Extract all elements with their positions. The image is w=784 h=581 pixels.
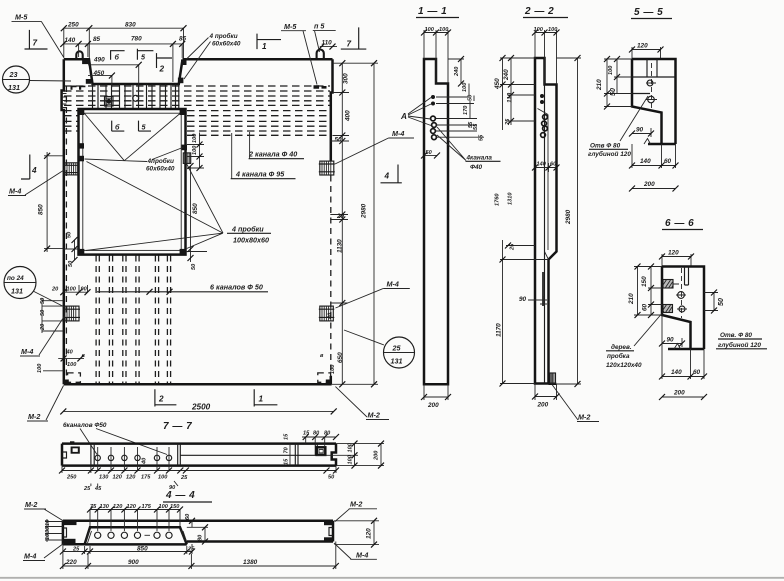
svg-text:40: 40	[142, 457, 148, 465]
svg-text:50: 50	[68, 260, 74, 267]
svg-text:4пробки: 4пробки	[147, 157, 174, 165]
svg-text:85: 85	[179, 36, 187, 43]
svg-text:25: 25	[392, 344, 402, 353]
svg-text:50: 50	[328, 475, 335, 481]
svg-text:120: 120	[113, 475, 123, 481]
svg-text:210: 210	[596, 79, 603, 91]
svg-text:150: 150	[641, 276, 648, 287]
svg-text:15: 15	[303, 431, 310, 437]
svg-text:60: 60	[642, 303, 649, 311]
svg-text:200: 200	[643, 181, 655, 188]
svg-text:Отв Ф 80: Отв Ф 80	[590, 143, 621, 150]
svg-text:250: 250	[66, 475, 77, 481]
svg-text:М-2: М-2	[25, 500, 37, 509]
svg-text:100: 100	[158, 475, 168, 481]
svg-text:140: 140	[65, 37, 76, 44]
svg-text:по 24: по 24	[7, 275, 24, 282]
svg-text:20: 20	[40, 323, 46, 331]
svg-text:б: б	[115, 53, 120, 62]
svg-text:110: 110	[322, 40, 333, 47]
svg-text:4: 4	[384, 172, 390, 181]
svg-text:4 — 4: 4 — 4	[165, 490, 195, 501]
svg-text:50: 50	[468, 94, 474, 101]
svg-text:55: 55	[473, 123, 479, 130]
svg-text:4 пробки: 4 пробки	[209, 32, 238, 40]
svg-text:850: 850	[38, 204, 45, 215]
svg-text:1130: 1130	[337, 239, 344, 253]
svg-text:850: 850	[137, 546, 148, 553]
svg-text:80: 80	[313, 431, 320, 437]
svg-text:200: 200	[374, 450, 380, 461]
svg-text:140: 140	[671, 369, 682, 376]
svg-text:100: 100	[462, 82, 468, 92]
svg-text:50: 50	[40, 309, 46, 316]
svg-text:75: 75	[90, 504, 97, 510]
svg-text:25: 25	[83, 486, 91, 492]
svg-text:М-2: М-2	[368, 411, 380, 420]
svg-text:900: 900	[128, 559, 139, 566]
svg-text:2980: 2980	[361, 203, 368, 219]
svg-text:2: 2	[158, 395, 164, 404]
svg-text:50: 50	[716, 298, 725, 306]
svg-text:80: 80	[198, 534, 204, 541]
svg-text:7: 7	[347, 40, 352, 49]
svg-text:25: 25	[505, 118, 511, 126]
svg-text:120: 120	[668, 250, 679, 257]
svg-text:120: 120	[126, 475, 136, 481]
svg-text:100: 100	[37, 363, 43, 373]
svg-text:100: 100	[348, 454, 354, 464]
svg-text:1760: 1760	[495, 193, 501, 206]
svg-text:15: 15	[284, 458, 290, 465]
svg-text:850: 850	[192, 203, 199, 214]
svg-text:50: 50	[67, 231, 73, 238]
svg-text:120: 120	[127, 504, 137, 510]
svg-text:4канала: 4канала	[466, 155, 493, 162]
svg-text:200: 200	[673, 390, 685, 397]
svg-text:М-4: М-4	[9, 187, 21, 196]
svg-text:100: 100	[425, 27, 435, 33]
svg-text:150: 150	[170, 504, 180, 510]
svg-text:55: 55	[479, 134, 485, 141]
svg-text:1: 1	[262, 42, 267, 51]
svg-text:100: 100	[159, 504, 169, 510]
svg-text:200: 200	[427, 402, 439, 409]
svg-text:М-4: М-4	[24, 552, 36, 561]
svg-text:п 5: п 5	[314, 22, 325, 31]
svg-text:2980: 2980	[565, 209, 572, 225]
svg-text:4: 4	[31, 166, 37, 175]
svg-text:60: 60	[185, 513, 191, 520]
svg-text:М-2: М-2	[28, 412, 40, 421]
svg-text:б: б	[115, 123, 120, 132]
svg-text:100: 100	[534, 27, 544, 33]
svg-text:50: 50	[191, 263, 197, 270]
svg-text:25: 25	[187, 547, 195, 553]
svg-text:Ф40: Ф40	[470, 164, 483, 171]
svg-text:глубиной 120: глубиной 120	[718, 341, 761, 349]
svg-text:30: 30	[45, 526, 51, 533]
svg-text:5 — 5: 5 — 5	[634, 7, 663, 18]
svg-text:1310: 1310	[508, 192, 514, 205]
svg-text:140: 140	[537, 162, 547, 168]
svg-text:2 — 2: 2 — 2	[524, 6, 554, 17]
svg-text:650: 650	[337, 352, 344, 363]
svg-text:130: 130	[100, 504, 110, 510]
svg-text:6каналов Ф50: 6каналов Ф50	[63, 422, 107, 429]
svg-text:23: 23	[9, 70, 18, 79]
svg-text:100: 100	[608, 65, 614, 75]
svg-text:85: 85	[93, 36, 101, 43]
svg-text:210: 210	[628, 293, 635, 305]
svg-text:400: 400	[344, 110, 351, 122]
svg-text:7 — 7: 7 — 7	[163, 421, 192, 432]
svg-text:10: 10	[45, 533, 51, 540]
svg-text:60: 60	[550, 162, 557, 168]
svg-text:90: 90	[636, 127, 644, 134]
svg-text:100: 100	[330, 364, 336, 374]
svg-text:830: 830	[125, 22, 136, 29]
svg-text:131: 131	[8, 83, 20, 92]
svg-text:90: 90	[81, 287, 88, 293]
svg-text:120: 120	[366, 528, 373, 539]
svg-text:120: 120	[113, 504, 123, 510]
svg-text:4 пробки: 4 пробки	[231, 225, 264, 234]
svg-text:М-2: М-2	[578, 413, 590, 422]
svg-text:А: А	[400, 112, 407, 121]
svg-text:780: 780	[131, 36, 142, 43]
svg-text:110: 110	[507, 92, 514, 103]
svg-text:100: 100	[192, 133, 198, 143]
svg-text:240: 240	[454, 66, 460, 77]
svg-text:25: 25	[72, 547, 80, 553]
svg-text:90: 90	[519, 296, 527, 303]
svg-text:60х60х40: 60х60х40	[146, 166, 175, 173]
svg-text:60: 60	[664, 158, 672, 165]
svg-text:15: 15	[284, 433, 290, 440]
svg-text:90: 90	[667, 337, 675, 344]
svg-text:450: 450	[494, 78, 501, 90]
svg-text:1 — 1: 1 — 1	[418, 6, 447, 17]
svg-text:6 — 6: 6 — 6	[665, 218, 694, 229]
svg-text:25: 25	[180, 475, 188, 481]
svg-text:120: 120	[637, 43, 648, 50]
svg-text:2 канала Ф 40: 2 канала Ф 40	[248, 150, 297, 159]
svg-text:40: 40	[328, 312, 334, 320]
svg-text:25: 25	[510, 243, 516, 251]
svg-text:М-4: М-4	[21, 347, 33, 356]
svg-text:6 каналов Ф 50: 6 каналов Ф 50	[210, 283, 263, 292]
svg-text:175: 175	[142, 504, 152, 510]
svg-text:50: 50	[335, 137, 343, 144]
svg-text:70: 70	[284, 446, 290, 453]
svg-text:7: 7	[33, 39, 38, 48]
svg-text:300: 300	[343, 73, 350, 84]
svg-text:пробка: пробка	[607, 352, 630, 360]
svg-text:М-4: М-4	[356, 551, 368, 560]
svg-text:М-5: М-5	[15, 13, 28, 22]
svg-text:100: 100	[67, 362, 77, 368]
svg-text:120х120х40: 120х120х40	[606, 362, 642, 369]
svg-text:250: 250	[67, 22, 79, 29]
svg-text:490: 490	[93, 57, 105, 64]
svg-text:170: 170	[463, 105, 469, 115]
svg-text:50: 50	[426, 150, 433, 156]
svg-text:2: 2	[159, 65, 165, 74]
svg-text:100: 100	[439, 27, 449, 33]
svg-text:60: 60	[693, 369, 701, 376]
svg-text:175: 175	[141, 475, 151, 481]
svg-text:М-5: М-5	[284, 22, 297, 31]
svg-text:100: 100	[67, 287, 77, 293]
svg-text:М-2: М-2	[350, 500, 362, 509]
svg-text:100х80х60: 100х80х60	[233, 236, 269, 245]
svg-text:20: 20	[336, 213, 345, 220]
svg-text:10: 10	[45, 519, 51, 526]
svg-text:М-4: М-4	[387, 280, 399, 289]
svg-text:80: 80	[324, 431, 331, 437]
svg-text:131: 131	[391, 357, 403, 366]
svg-text:220: 220	[65, 559, 77, 566]
svg-text:1380: 1380	[243, 559, 258, 566]
svg-text:М-4: М-4	[392, 129, 404, 138]
svg-text:40: 40	[66, 350, 74, 356]
svg-text:131: 131	[11, 287, 23, 296]
svg-text:240: 240	[503, 69, 510, 81]
svg-text:глубиной 120: глубиной 120	[588, 150, 631, 158]
svg-text:2500: 2500	[191, 403, 211, 412]
svg-text:140: 140	[640, 158, 651, 165]
svg-text:20: 20	[51, 287, 59, 293]
svg-text:200: 200	[537, 402, 549, 409]
svg-text:Отв. Ф 80: Отв. Ф 80	[720, 332, 752, 339]
svg-text:50: 50	[40, 297, 46, 304]
svg-text:1: 1	[259, 395, 264, 404]
svg-text:100: 100	[192, 145, 198, 155]
svg-text:50: 50	[608, 88, 617, 96]
svg-text:45: 45	[94, 486, 102, 492]
svg-text:130: 130	[99, 475, 109, 481]
svg-text:дерев.: дерев.	[611, 343, 632, 351]
svg-text:100: 100	[548, 27, 558, 33]
svg-text:1170: 1170	[496, 323, 503, 337]
svg-text:60х60х40: 60х60х40	[212, 41, 241, 48]
svg-text:4 канала Ф 95: 4 канала Ф 95	[235, 170, 285, 179]
svg-text:100: 100	[348, 442, 354, 452]
